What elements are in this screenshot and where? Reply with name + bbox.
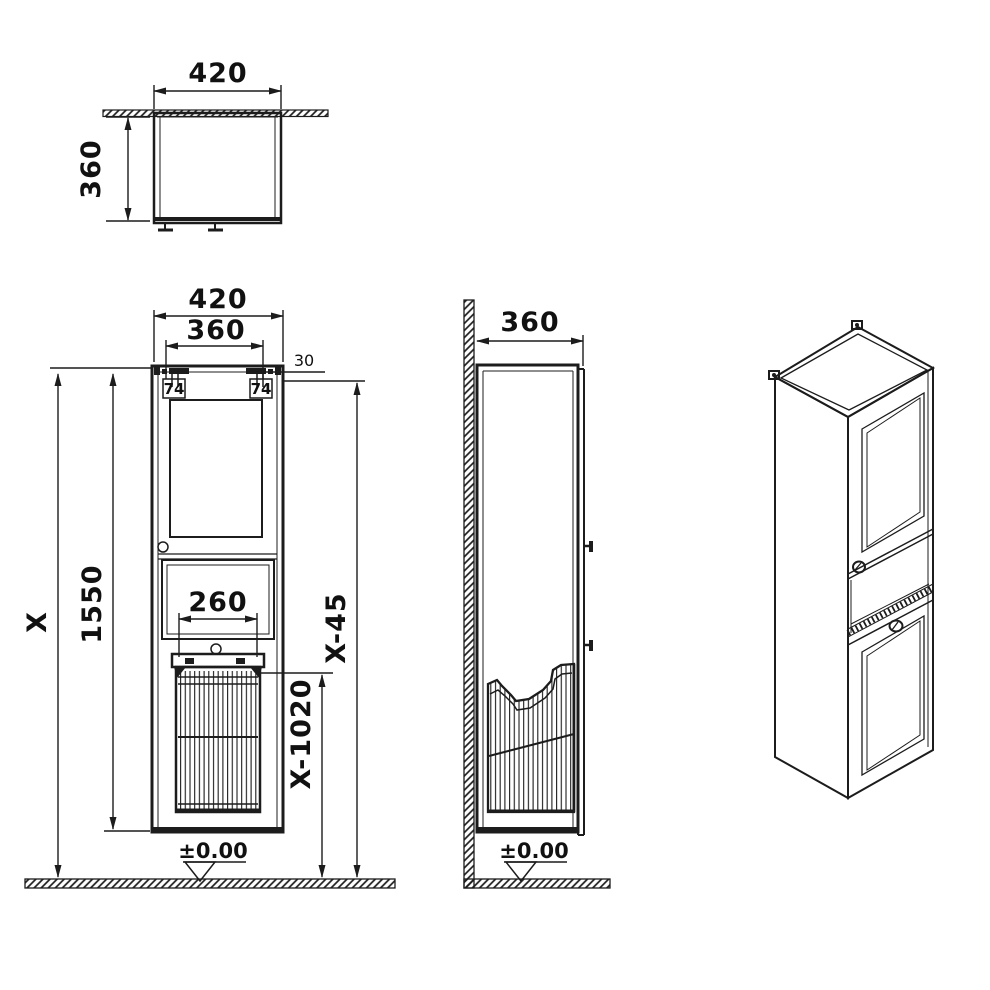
side-floor — [464, 879, 610, 888]
side-floor-level-label: ±0.00 — [499, 839, 568, 863]
front-hanger-label: 360 — [186, 315, 245, 346]
basket-wires — [179, 671, 257, 810]
technical-drawing: 420 360 — [0, 0, 990, 990]
front-bracket-right-label: 74 — [251, 380, 272, 398]
front-floor-level-label: ±0.00 — [178, 839, 247, 863]
side-depth-label: 360 — [500, 307, 559, 338]
height-minus-45-label: X-45 — [321, 592, 352, 663]
front-floor — [25, 879, 395, 888]
height-minus-1020-label: X-1020 — [286, 679, 317, 790]
top-view-width-label: 420 — [188, 58, 247, 89]
front-basket-width-label: 260 — [188, 587, 247, 618]
front-laundry-basket — [172, 654, 264, 812]
front-width-label: 420 — [188, 284, 247, 315]
front-bracket-left-label: 74 — [164, 380, 185, 398]
front-offset-label: 30 — [294, 351, 314, 370]
cabinet-height-label: 1550 — [77, 564, 108, 643]
side-wall — [464, 300, 474, 888]
drawing-background — [0, 0, 990, 990]
overall-height-label: X — [22, 611, 53, 633]
top-view-depth-label: 360 — [76, 139, 107, 198]
